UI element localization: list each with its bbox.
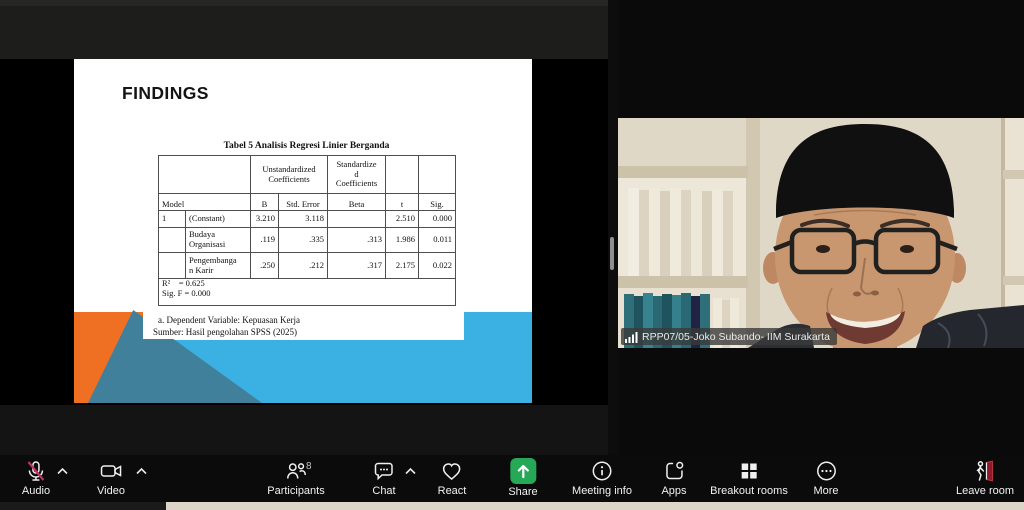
share-bottom-band [0,405,608,455]
chat-button[interactable]: Chat [372,459,396,497]
chat-bubble-icon [372,459,396,483]
meeting-info-label: Meeting info [572,485,632,497]
col-sig: Sig. [419,194,456,211]
share-label: Share [508,486,537,498]
apps-button[interactable]: Apps [661,459,686,497]
table-row: 1 (Constant) 3.210 3.118 2.510 0.000 [159,211,456,228]
camera-icon [99,459,123,483]
apps-label: Apps [661,485,686,497]
participant-name-label: RPP07/05-Joko Subando- IIM Surakarta [621,328,837,345]
table-title: Tabel 5 Analisis Regresi Linier Berganda [158,141,455,151]
slide-title: FINDINGS [122,83,209,104]
apps-icon [662,459,686,483]
table-header-groups: Unstandardized Coefficients Standardize … [159,156,456,194]
share-screen-icon [514,462,532,480]
table-row: Budaya Organisasi .119 .335 .313 1.986 0… [159,228,456,253]
participants-label: Participants [267,485,324,497]
signal-bars-icon [625,331,638,343]
standardized-header: Standardize d Coefficients [328,156,386,194]
video-panel: RPP07/05-Joko Subando- IIM Surakarta [618,0,1024,455]
mic-muted-icon [24,459,48,483]
bottom-edge-right [166,502,1024,510]
leave-room-label: Leave room [956,485,1014,497]
col-std-error: Std. Error [279,194,328,211]
more-label: More [813,485,838,497]
bottom-edge-left [0,502,166,510]
table-header-row: Model B Std. Error Beta t Sig. [159,194,456,211]
breakout-rooms-button[interactable]: Breakout rooms [710,459,788,497]
participants-count-badge: 8 [306,461,312,472]
scrollbar-thumb[interactable] [610,237,614,270]
audio-chevron-up-icon[interactable] [57,467,68,475]
heart-icon [440,459,464,483]
video-label: Video [97,485,125,497]
leave-room-button[interactable]: Leave room [956,459,1014,497]
table-footer-row: R² = 0.625 Sig. F = 0.000 [159,279,456,306]
blue-accent-corner [464,312,532,340]
footnote-dependent-variable: a. Dependent Variable: Kepuasan Kerja [158,315,300,325]
regression-table: Unstandardized Coefficients Standardize … [158,155,456,306]
people-icon [284,459,308,483]
shared-screen-panel: FINDINGS Tabel 5 Analisis Regresi Linier… [0,0,608,455]
webcam-illustration [618,118,1024,348]
participant-video-tile[interactable]: RPP07/05-Joko Subando- IIM Surakarta [618,118,1024,348]
col-t: t [386,194,419,211]
info-icon [590,459,614,483]
leave-door-icon [973,459,997,483]
window-top-strip [0,0,608,6]
video-chevron-up-icon[interactable] [136,467,147,475]
share-button[interactable]: Share [508,459,537,498]
chat-label: Chat [372,485,395,497]
breakout-rooms-label: Breakout rooms [710,485,788,497]
sig-f-line: Sig. F = 0.000 [162,289,452,299]
participants-button[interactable]: Participants [267,459,324,497]
react-button[interactable]: React [438,459,467,497]
video-button[interactable]: Video [97,459,125,497]
col-beta: Beta [328,194,386,211]
col-model: Model [159,194,251,211]
footnote-sumber: Sumber: Hasil pengolahan SPSS (2025) [153,327,297,337]
more-button[interactable]: More [813,459,838,497]
more-dots-icon [814,459,838,483]
col-b: B [251,194,279,211]
meeting-toolbar: Audio Video [0,455,1024,502]
breakout-grid-icon [737,459,761,483]
chat-chevron-up-icon[interactable] [405,467,416,475]
participant-name-text: RPP07/05-Joko Subando- IIM Surakarta [642,331,830,343]
meeting-info-button[interactable]: Meeting info [572,459,632,497]
unstandardized-header: Unstandardized Coefficients [251,156,328,194]
book-stack [628,187,733,276]
audio-label: Audio [22,485,50,497]
meeting-window: FINDINGS Tabel 5 Analisis Regresi Linier… [0,0,1024,510]
react-label: React [438,485,467,497]
audio-button[interactable]: Audio [22,459,50,497]
presentation-slide: FINDINGS Tabel 5 Analisis Regresi Linier… [74,59,532,403]
table-row: Pengembanga n Karir .250 .212 .317 2.175… [159,253,456,279]
panel-divider [608,0,618,455]
